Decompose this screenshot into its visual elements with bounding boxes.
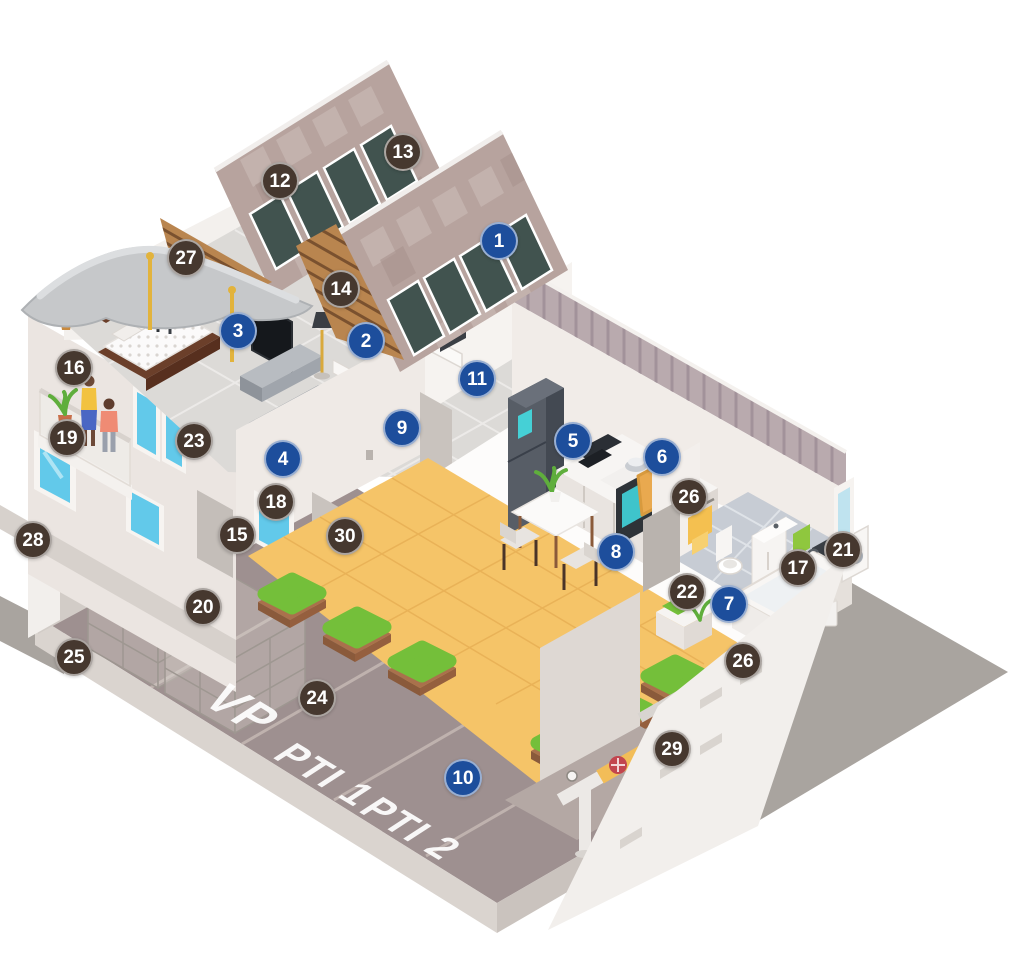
marker-9[interactable]: 9 bbox=[383, 409, 421, 447]
marker-2[interactable]: 2 bbox=[347, 322, 385, 360]
marker-22[interactable]: 22 bbox=[668, 573, 706, 611]
marker-16[interactable]: 16 bbox=[55, 349, 93, 387]
marker-1[interactable]: 1 bbox=[480, 222, 518, 260]
marker-5[interactable]: 5 bbox=[554, 422, 592, 460]
marker-29[interactable]: 29 bbox=[653, 730, 691, 768]
pot-icon bbox=[628, 458, 644, 467]
marker-26b[interactable]: 26 bbox=[724, 642, 762, 680]
marker-17[interactable]: 17 bbox=[779, 549, 817, 587]
marker-26a[interactable]: 26 bbox=[670, 478, 708, 516]
marker-6[interactable]: 6 bbox=[643, 438, 681, 476]
isometric-house-diagram: VP PTI 1 PTI 2 1234567891011121314151617… bbox=[0, 0, 1024, 959]
pressure-gauge-icon bbox=[567, 771, 577, 781]
isometric-scene bbox=[0, 0, 1024, 959]
marker-23[interactable]: 23 bbox=[175, 422, 213, 460]
marker-11[interactable]: 11 bbox=[458, 360, 496, 398]
marker-12[interactable]: 12 bbox=[261, 162, 299, 200]
marker-30[interactable]: 30 bbox=[326, 517, 364, 555]
marker-7[interactable]: 7 bbox=[710, 585, 748, 623]
marker-18[interactable]: 18 bbox=[257, 483, 295, 521]
marker-8[interactable]: 8 bbox=[597, 533, 635, 571]
marker-28[interactable]: 28 bbox=[14, 521, 52, 559]
marker-10[interactable]: 10 bbox=[444, 759, 482, 797]
marker-3[interactable]: 3 bbox=[219, 312, 257, 350]
marker-19[interactable]: 19 bbox=[48, 419, 86, 457]
marker-14[interactable]: 14 bbox=[322, 270, 360, 308]
light-switch bbox=[366, 450, 373, 460]
marker-25[interactable]: 25 bbox=[55, 638, 93, 676]
marker-4[interactable]: 4 bbox=[264, 440, 302, 478]
marker-20[interactable]: 20 bbox=[184, 588, 222, 626]
marker-24[interactable]: 24 bbox=[298, 679, 336, 717]
marker-21[interactable]: 21 bbox=[824, 531, 862, 569]
marker-27[interactable]: 27 bbox=[167, 239, 205, 277]
marker-13[interactable]: 13 bbox=[384, 133, 422, 171]
marker-15[interactable]: 15 bbox=[218, 516, 256, 554]
